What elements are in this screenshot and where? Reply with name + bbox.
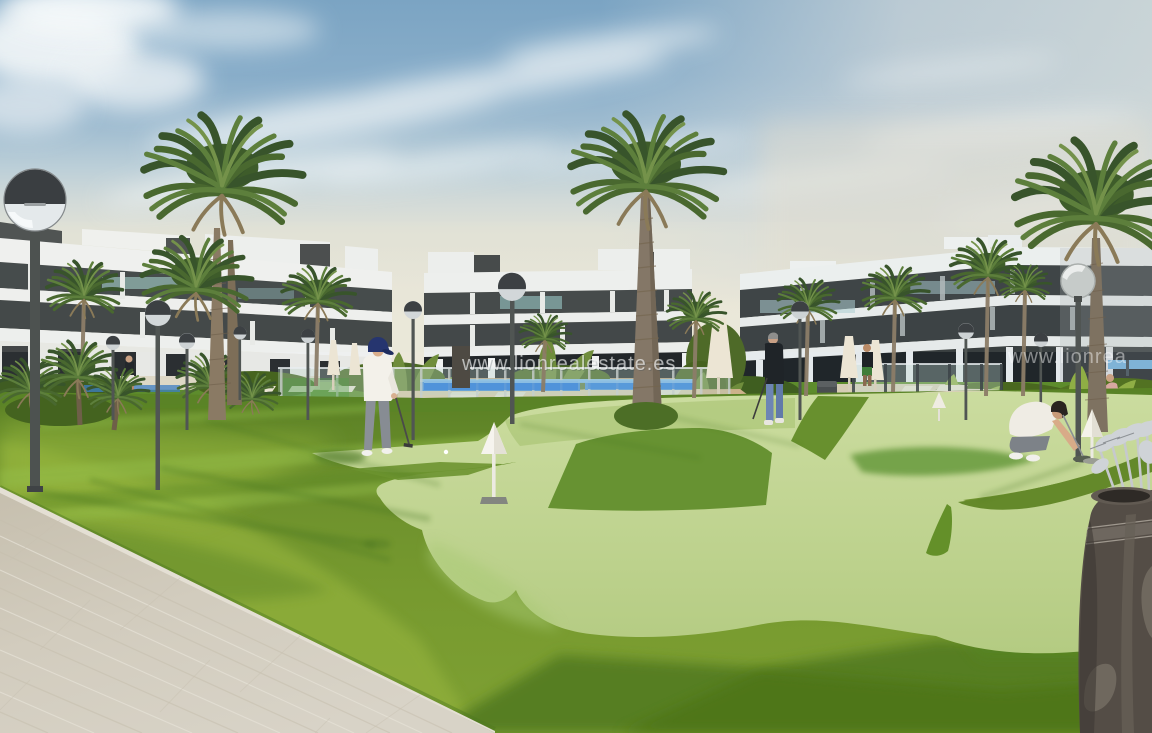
svg-text:www.lionrealestate.es: www.lionrealestate.es	[461, 353, 676, 375]
svg-text:www.lionrea: www.lionrea	[1007, 346, 1127, 368]
